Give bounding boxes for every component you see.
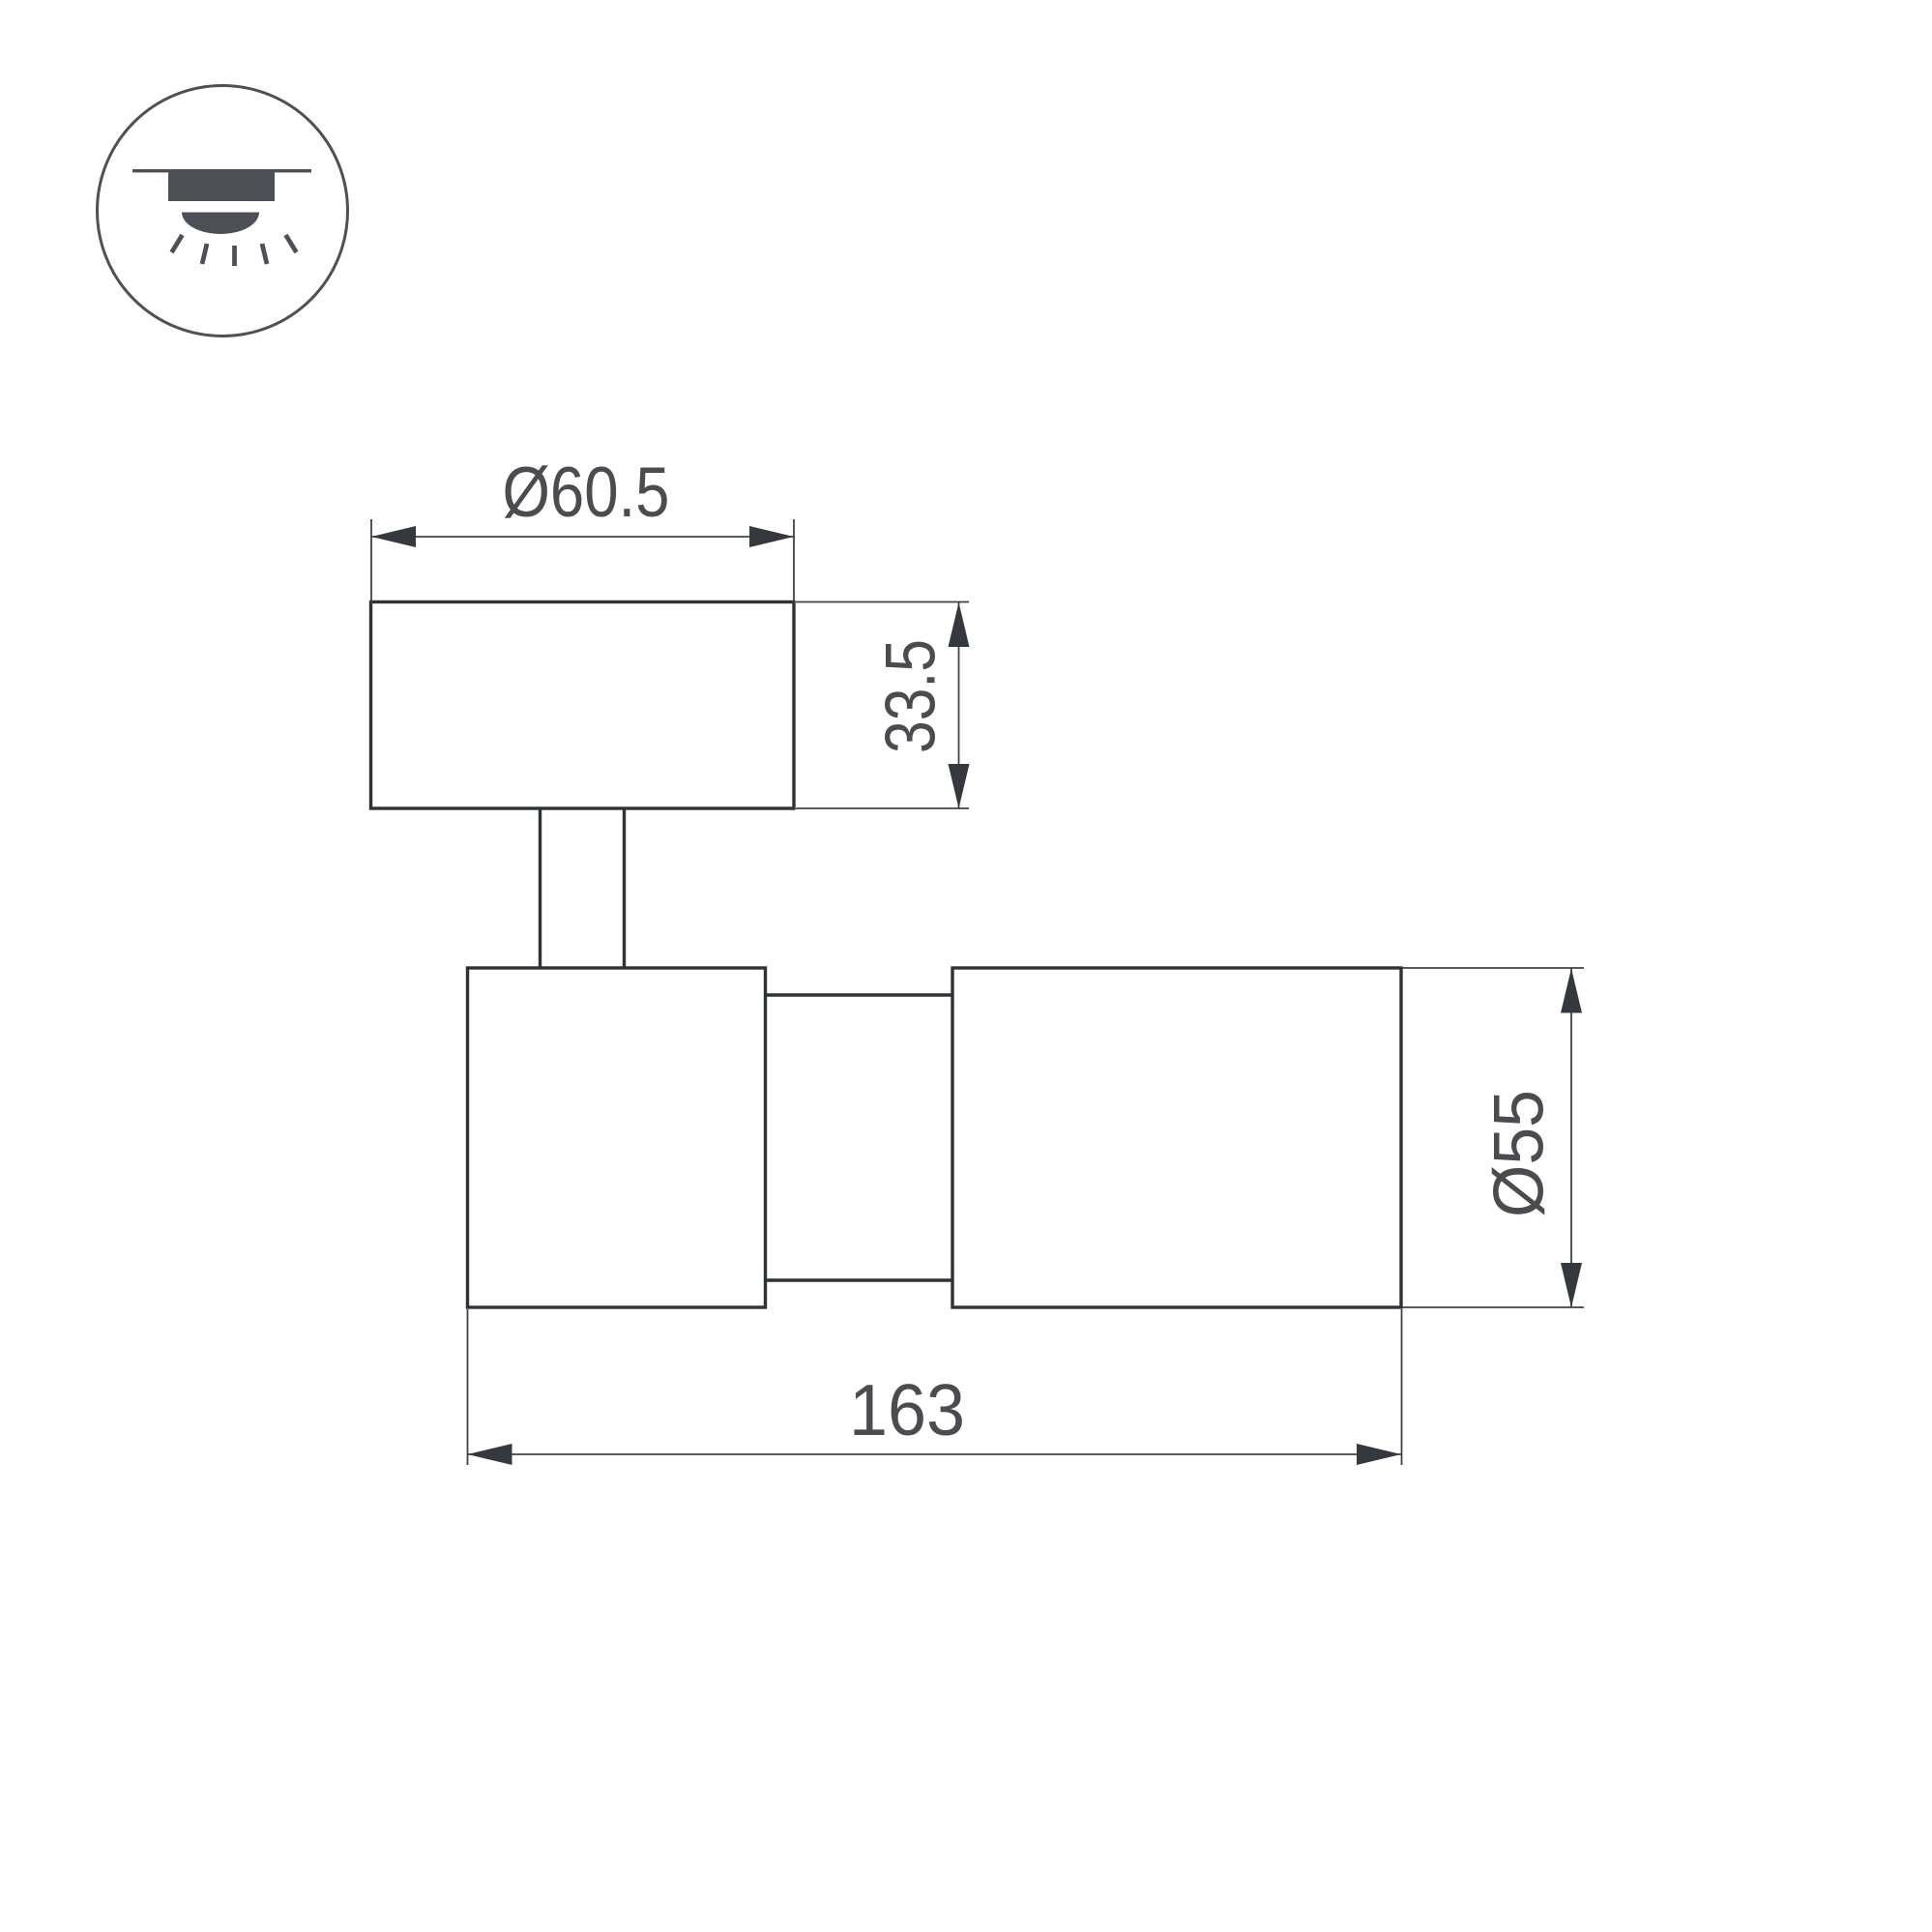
svg-text:33.5: 33.5 xyxy=(872,639,951,753)
svg-text:163: 163 xyxy=(849,1369,965,1450)
svg-text:Ø55: Ø55 xyxy=(1480,1090,1559,1217)
svg-text:Ø60.5: Ø60.5 xyxy=(503,454,670,532)
